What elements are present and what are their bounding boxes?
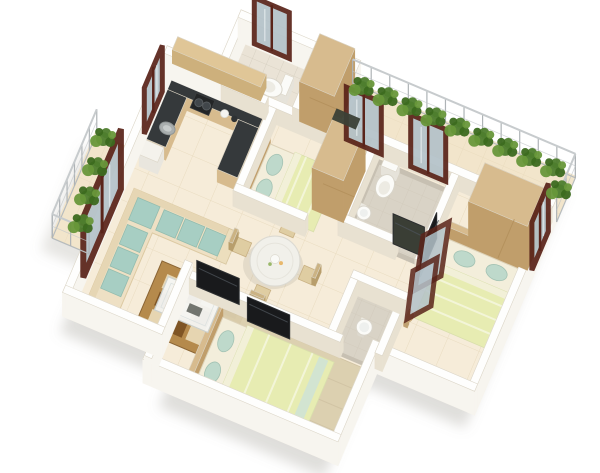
floor-plan-3d-render [0,0,600,473]
floor-plan-image [0,0,600,473]
